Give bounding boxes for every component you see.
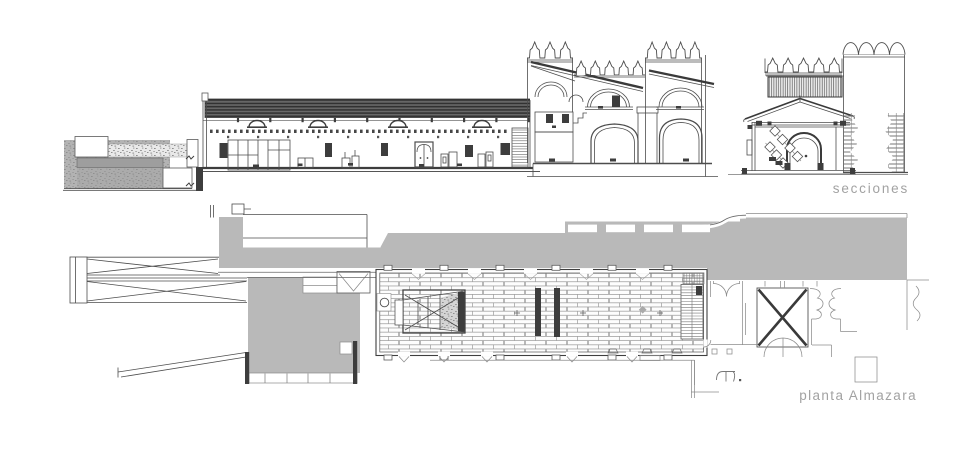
castle-section-drawing [527, 42, 718, 177]
plan-caption: planta Almazara [799, 388, 917, 403]
landscape-section-drawing [63, 137, 203, 191]
nave-section-drawing [196, 93, 540, 191]
tower-section-drawing [728, 43, 908, 175]
almazara-drawing [0, 0, 970, 450]
plan-exhibition-hall [376, 265, 711, 360]
architectural-sheet: secciones planta Almazara [0, 0, 970, 450]
sections-caption: secciones [833, 181, 909, 196]
floor-plan-drawing [70, 204, 929, 398]
